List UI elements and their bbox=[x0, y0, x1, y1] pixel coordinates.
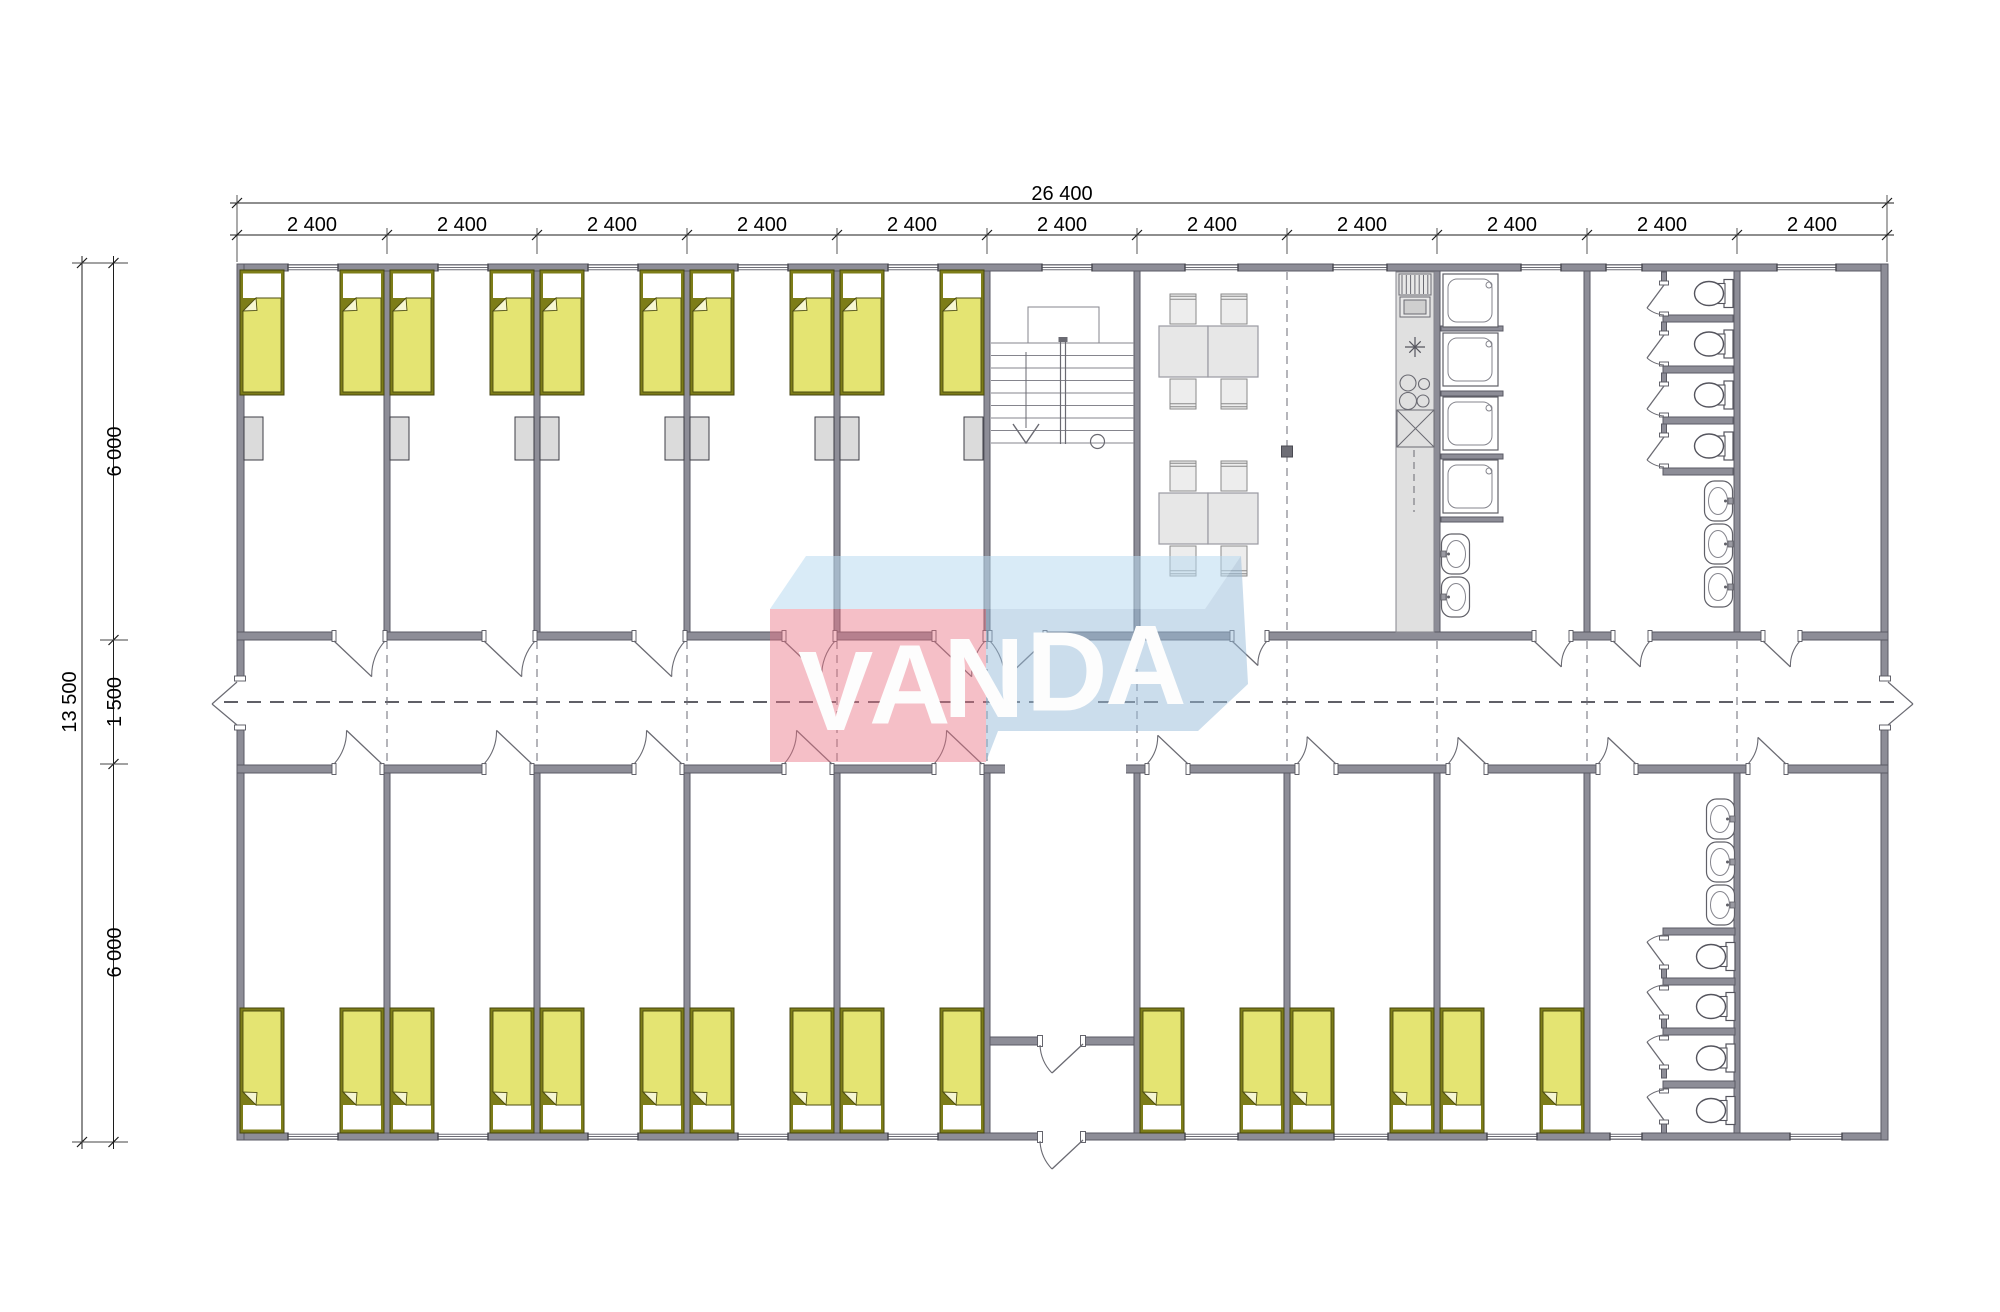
svg-text:2 400: 2 400 bbox=[737, 214, 787, 236]
svg-text:2 400: 2 400 bbox=[287, 214, 337, 236]
svg-text:1 500: 1 500 bbox=[104, 677, 126, 727]
svg-text:2 400: 2 400 bbox=[1187, 214, 1237, 236]
svg-text:V: V bbox=[798, 628, 873, 754]
svg-text:6 000: 6 000 bbox=[104, 426, 126, 476]
svg-text:2 400: 2 400 bbox=[437, 214, 487, 236]
svg-text:13 500: 13 500 bbox=[59, 671, 81, 732]
svg-text:2 400: 2 400 bbox=[1637, 214, 1687, 236]
svg-text:A: A bbox=[1105, 602, 1187, 728]
svg-text:26 400: 26 400 bbox=[1031, 183, 1092, 205]
svg-text:N: N bbox=[943, 615, 1025, 741]
svg-text:2 400: 2 400 bbox=[1787, 214, 1837, 236]
svg-text:2 400: 2 400 bbox=[1487, 214, 1537, 236]
svg-text:2 400: 2 400 bbox=[887, 214, 937, 236]
svg-text:2 400: 2 400 bbox=[1337, 214, 1387, 236]
svg-text:6 000: 6 000 bbox=[104, 927, 126, 977]
svg-text:2 400: 2 400 bbox=[587, 214, 637, 236]
svg-text:A: A bbox=[869, 622, 951, 748]
svg-text:D: D bbox=[1026, 609, 1108, 735]
svg-text:2 400: 2 400 bbox=[1037, 214, 1087, 236]
